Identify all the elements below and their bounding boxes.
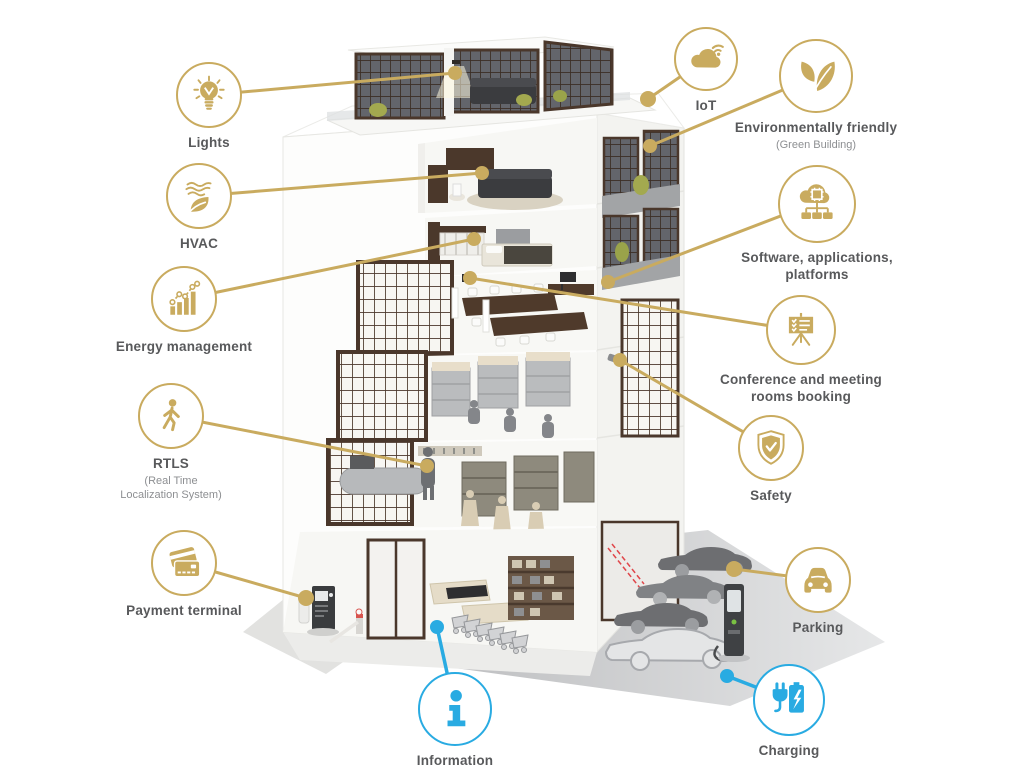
smart-building-infographic: Lights HVAC Energy management	[0, 0, 1024, 768]
feature-lights[interactable]: Lights	[109, 62, 309, 152]
feature-label: Conference and meeting rooms booking	[720, 372, 882, 406]
feature-energy-management[interactable]: Energy management	[84, 266, 284, 356]
info-icon	[418, 672, 492, 746]
lightbulb-icon	[176, 62, 242, 128]
feature-hvac[interactable]: HVAC	[99, 163, 299, 253]
feature-software-platforms[interactable]: Software, applications, platforms	[712, 165, 922, 284]
feature-label: Information	[417, 753, 493, 768]
feature-safety[interactable]: Safety	[671, 415, 871, 505]
leaves-icon	[779, 39, 853, 113]
floor-office	[358, 262, 622, 364]
feature-label: Payment terminal	[126, 603, 242, 620]
feature-label: Energy management	[116, 339, 252, 356]
feature-environmentally-friendly[interactable]: Environmentally friendly (Green Building…	[701, 39, 931, 153]
feature-charging[interactable]: Charging	[689, 664, 889, 760]
car-icon	[785, 547, 851, 613]
feature-label: Charging	[759, 743, 820, 760]
presentation-board-icon	[766, 295, 836, 365]
feature-label: Software, applications, platforms	[741, 250, 893, 284]
feature-sublabel: (Green Building)	[776, 139, 856, 153]
feature-sublabel: (Real Time Localization System)	[120, 475, 222, 503]
bar-chart-icon	[151, 266, 217, 332]
feature-label: HVAC	[180, 236, 218, 253]
feature-rtls[interactable]: RTLS (Real Time Localization System)	[71, 383, 271, 502]
feature-information[interactable]: Information	[355, 672, 555, 768]
ev-charger-icon	[753, 664, 825, 736]
feature-parking[interactable]: Parking	[718, 547, 918, 637]
feature-label: Environmentally friendly	[735, 120, 897, 137]
feature-payment-terminal[interactable]: Payment terminal	[84, 530, 284, 620]
feature-label: Lights	[188, 135, 230, 152]
feature-label: Safety	[750, 488, 792, 505]
floor-shelves	[338, 352, 597, 442]
airflow-leaf-icon	[166, 163, 232, 229]
feature-conference-booking[interactable]: Conference and meeting rooms booking	[696, 295, 906, 406]
walking-person-icon	[138, 383, 204, 449]
feature-label: RTLS	[153, 456, 189, 473]
cloud-network-icon	[778, 165, 856, 243]
feature-label: Parking	[793, 620, 844, 637]
credit-cards-icon	[151, 530, 217, 596]
shield-check-icon	[738, 415, 804, 481]
